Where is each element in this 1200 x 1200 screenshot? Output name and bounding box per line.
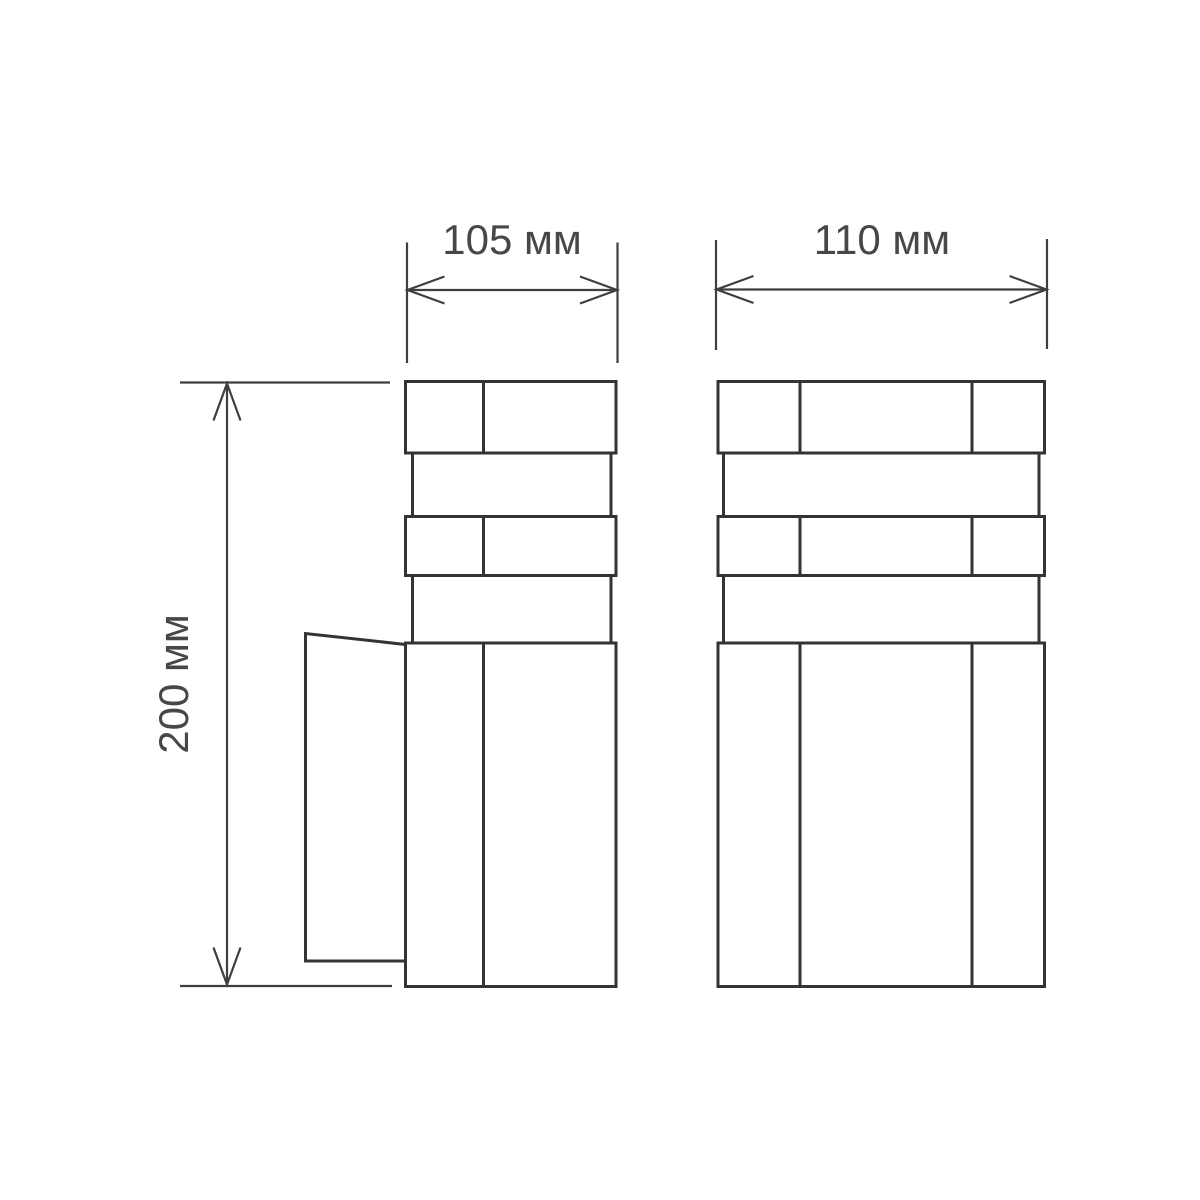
- svg-text:105 мм: 105 мм: [442, 216, 582, 263]
- svg-text:110 мм: 110 мм: [814, 216, 950, 263]
- svg-text:200 мм: 200 мм: [150, 614, 197, 754]
